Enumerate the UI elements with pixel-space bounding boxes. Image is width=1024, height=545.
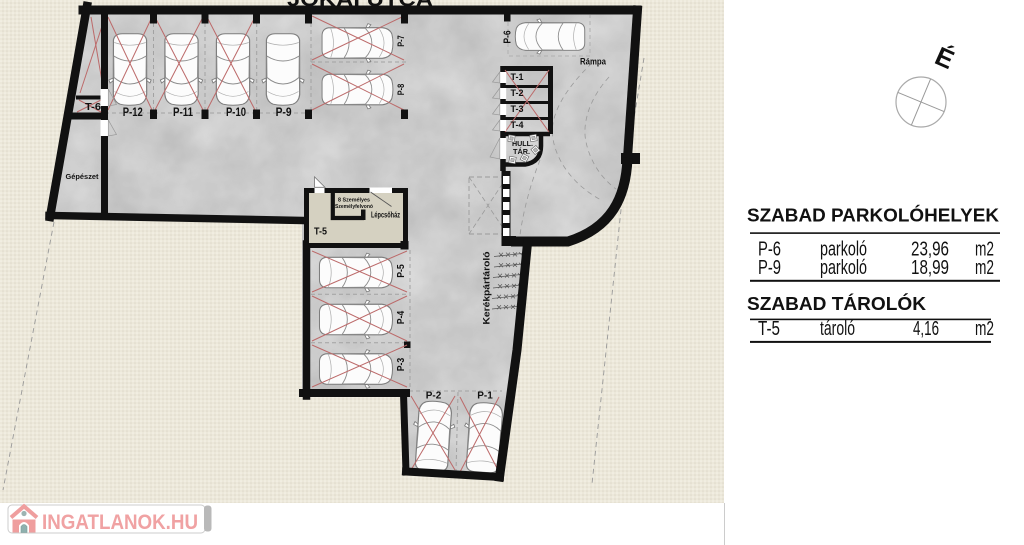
svg-text:T-3: T-3 [511,104,524,115]
svg-text:P-8: P-8 [396,84,406,96]
svg-text:4,16: 4,16 [913,318,939,340]
svg-text:T-4: T-4 [511,120,525,131]
svg-text:T-5: T-5 [758,318,780,340]
svg-text:parkoló: parkoló [820,257,867,279]
svg-text:P-9: P-9 [276,105,292,119]
svg-text:m2: m2 [975,257,994,279]
svg-text:P-11: P-11 [173,105,193,119]
svg-text:T-1: T-1 [511,72,525,83]
svg-text:P-6: P-6 [503,30,514,43]
svg-text:TÁR.: TÁR. [513,147,530,156]
svg-text:P-3: P-3 [395,358,407,372]
svg-text:tároló: tároló [820,318,855,340]
svg-text:m2: m2 [975,318,994,340]
svg-text:P-9: P-9 [758,257,781,279]
svg-text:T-5: T-5 [314,226,327,238]
svg-text:P-12: P-12 [123,105,143,119]
svg-text:T-6: T-6 [85,102,101,113]
svg-text:Személyfelvonó: Személyfelvonó [335,204,373,210]
svg-text:SZABAD PARKOLÓHELYEK: SZABAD PARKOLÓHELYEK [747,205,1000,226]
svg-text:8 Személyes: 8 Személyes [338,198,370,204]
svg-text:P-10: P-10 [226,105,246,119]
svg-text:Kerékpártároló: Kerékpártároló [482,251,492,325]
svg-text:P-2: P-2 [426,390,442,402]
svg-text:P-1: P-1 [477,390,493,402]
svg-text:P-7: P-7 [396,35,406,47]
svg-text:Rámpa: Rámpa [580,57,607,68]
svg-text:Lépcsőház: Lépcsőház [371,211,400,220]
svg-text:18,99: 18,99 [911,257,949,279]
svg-text:Gépészet: Gépészet [66,174,100,181]
svg-text:P-5: P-5 [395,264,407,278]
svg-text:SZABAD TÁROLÓK: SZABAD TÁROLÓK [747,293,927,314]
svg-text:T-2: T-2 [511,88,524,99]
svg-text:HULL.: HULL. [512,141,533,148]
svg-text:INGATLANOK.HU: INGATLANOK.HU [42,511,198,534]
svg-text:P-4: P-4 [395,311,407,325]
